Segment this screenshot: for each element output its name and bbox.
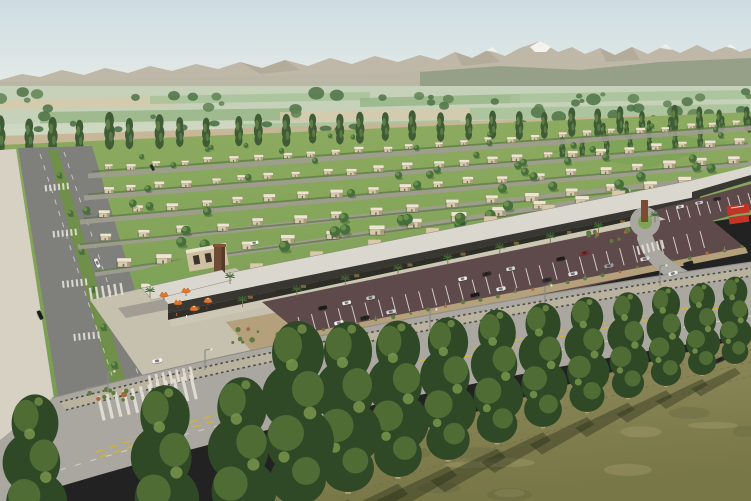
distant-tree <box>114 126 123 132</box>
distant-tree <box>261 121 272 127</box>
shop-light <box>354 274 359 277</box>
house <box>530 135 539 141</box>
distant-tree <box>31 89 43 99</box>
shrub <box>238 337 242 341</box>
house <box>433 181 443 188</box>
distant-tree <box>150 114 156 119</box>
distant-tree <box>682 97 693 106</box>
house <box>217 223 229 231</box>
house <box>306 152 315 158</box>
house <box>558 132 567 138</box>
house <box>263 173 273 180</box>
shop-light <box>461 253 466 256</box>
poplar-tree <box>282 114 291 147</box>
distant-tree <box>219 101 225 106</box>
distant-tree <box>38 111 51 121</box>
shrub <box>625 227 631 233</box>
shrub <box>130 396 134 400</box>
distant-tree <box>34 126 44 132</box>
shrub <box>246 327 250 331</box>
shrub <box>241 341 244 344</box>
poplar-tree <box>408 110 417 141</box>
grass-patch <box>487 488 532 501</box>
distant-tree <box>203 103 215 112</box>
distant-tree <box>534 104 543 112</box>
shrub <box>96 397 100 401</box>
shrub <box>257 330 260 333</box>
house <box>734 138 745 145</box>
foreground-tree <box>367 321 428 479</box>
poplar-tree <box>436 112 444 142</box>
house <box>212 178 221 184</box>
house <box>297 191 309 199</box>
house <box>263 194 275 202</box>
house <box>203 157 212 163</box>
house <box>154 181 164 188</box>
shrub <box>322 328 325 331</box>
house <box>202 200 212 207</box>
distant-tree <box>188 93 198 101</box>
house <box>181 180 192 187</box>
house <box>354 147 364 153</box>
house <box>650 143 661 150</box>
distant-tree <box>586 94 601 106</box>
distant-tree <box>308 87 324 100</box>
foreground-tree <box>315 322 382 494</box>
shrub <box>566 281 570 285</box>
house <box>567 151 578 158</box>
house <box>152 161 160 166</box>
shrub <box>391 315 395 319</box>
shrub <box>478 298 482 302</box>
pedestrian <box>194 311 195 314</box>
house <box>346 169 357 176</box>
house <box>100 234 112 242</box>
entry-monument <box>641 200 648 222</box>
distant-tree <box>663 100 672 107</box>
distant-tree <box>491 98 499 105</box>
distant-tree <box>131 94 140 101</box>
house <box>459 160 470 167</box>
distant-tree <box>741 88 750 95</box>
house <box>600 167 612 175</box>
grass-patch <box>668 407 709 419</box>
shrub <box>595 236 598 239</box>
house <box>252 218 264 226</box>
shop-light <box>248 296 253 299</box>
distant-tree <box>378 94 386 101</box>
house <box>105 164 113 169</box>
shrub <box>231 341 234 344</box>
shop-light <box>407 263 412 266</box>
shrub <box>121 398 125 402</box>
poplar-tree <box>202 118 210 148</box>
house <box>435 142 443 147</box>
shrub <box>600 273 604 277</box>
house <box>116 258 131 268</box>
house <box>373 165 384 172</box>
house <box>678 142 687 148</box>
house <box>708 123 716 128</box>
poplar-tree <box>594 109 602 138</box>
poplar-tree <box>568 107 576 137</box>
poplar-tree <box>176 117 184 147</box>
house <box>631 164 642 171</box>
distant-tree <box>439 102 449 110</box>
house <box>229 156 239 162</box>
house <box>254 155 264 161</box>
shrub <box>87 391 92 396</box>
shrub <box>409 312 412 315</box>
house <box>661 127 669 132</box>
poplar-tree <box>104 112 115 150</box>
house <box>293 215 307 224</box>
house <box>126 164 136 170</box>
pedestrian <box>206 307 207 310</box>
house <box>662 160 675 169</box>
shrub <box>531 288 534 291</box>
house <box>405 144 413 149</box>
poplar-tree <box>465 113 473 140</box>
shrub <box>609 239 613 243</box>
house <box>166 203 178 211</box>
scene-canvas <box>0 0 751 501</box>
house <box>369 225 385 236</box>
house <box>98 210 110 218</box>
poplar-tree <box>125 118 134 149</box>
house <box>462 177 473 184</box>
house <box>582 130 591 136</box>
house <box>727 156 739 164</box>
distant-tree <box>17 87 29 97</box>
shrub <box>618 238 621 241</box>
grass-patch <box>620 426 661 437</box>
shrub <box>235 327 240 332</box>
house <box>565 169 576 176</box>
distant-tree <box>414 92 424 100</box>
distant-tree <box>168 91 180 100</box>
shrub <box>705 252 709 256</box>
house <box>624 147 635 154</box>
pedestrian <box>176 313 177 316</box>
grass-patch <box>687 422 738 429</box>
poplar-tree <box>515 111 523 140</box>
foreground-tree <box>718 277 751 365</box>
shop-light <box>301 285 306 288</box>
distant-tree <box>571 99 580 106</box>
house <box>126 185 136 192</box>
shrub <box>461 300 465 304</box>
shrub <box>249 337 254 342</box>
distant-tree <box>330 90 344 101</box>
house <box>507 137 516 143</box>
poplar-tree <box>355 112 364 144</box>
poplar-tree <box>616 106 624 134</box>
shrub <box>124 389 129 394</box>
distant-tree <box>628 94 640 103</box>
distant-tree <box>24 98 31 103</box>
distant-tree <box>576 94 582 99</box>
house <box>497 176 508 183</box>
house <box>383 147 392 153</box>
house <box>687 123 696 129</box>
pedestrian <box>186 315 187 318</box>
house <box>323 169 333 175</box>
house <box>460 140 468 145</box>
poplar-tree <box>308 114 316 144</box>
house <box>330 189 343 198</box>
shrub <box>740 245 743 248</box>
grass-patch <box>604 464 652 476</box>
house <box>103 187 114 194</box>
house <box>368 187 379 194</box>
house <box>237 175 246 181</box>
house <box>485 195 498 203</box>
aerial-masterplan-render <box>0 0 751 501</box>
house <box>370 207 383 215</box>
poplar-tree <box>381 112 389 141</box>
distant-tree <box>427 99 435 106</box>
house <box>406 204 419 212</box>
house <box>138 230 150 238</box>
poplar-tree <box>541 112 549 139</box>
shrub <box>496 294 500 298</box>
poplar-tree <box>235 116 243 146</box>
poplar-tree <box>336 114 345 145</box>
house <box>704 140 715 147</box>
house <box>401 162 412 169</box>
house <box>636 128 646 134</box>
foreground-tree <box>420 317 476 461</box>
house <box>732 120 740 125</box>
house <box>565 188 578 196</box>
shrub <box>586 230 591 235</box>
house <box>487 156 498 163</box>
distant-tree <box>695 93 705 101</box>
pedestrian <box>214 302 215 305</box>
shrub <box>688 257 691 260</box>
shrub <box>636 266 639 269</box>
house <box>331 150 340 156</box>
distant-tree <box>428 95 434 100</box>
shrub <box>102 395 106 399</box>
shrub <box>111 391 115 395</box>
house <box>291 172 300 178</box>
house <box>543 152 552 158</box>
shrub <box>618 270 621 273</box>
distant-tree <box>211 93 221 101</box>
house <box>181 161 189 166</box>
house <box>232 197 243 204</box>
poplar-tree <box>254 114 263 146</box>
distant-tree <box>291 109 302 117</box>
house <box>607 129 615 134</box>
distant-tree <box>70 121 77 127</box>
shop-light <box>514 242 519 245</box>
poplar-tree <box>155 114 165 149</box>
poplar-tree <box>24 118 33 152</box>
distant-tree <box>579 99 584 103</box>
house <box>445 199 458 208</box>
house <box>399 184 411 192</box>
distant-tree <box>209 120 220 126</box>
shop-light <box>567 231 572 234</box>
pedestrian <box>170 309 171 312</box>
distant-tree <box>600 92 605 96</box>
foreground-tree <box>471 310 523 445</box>
